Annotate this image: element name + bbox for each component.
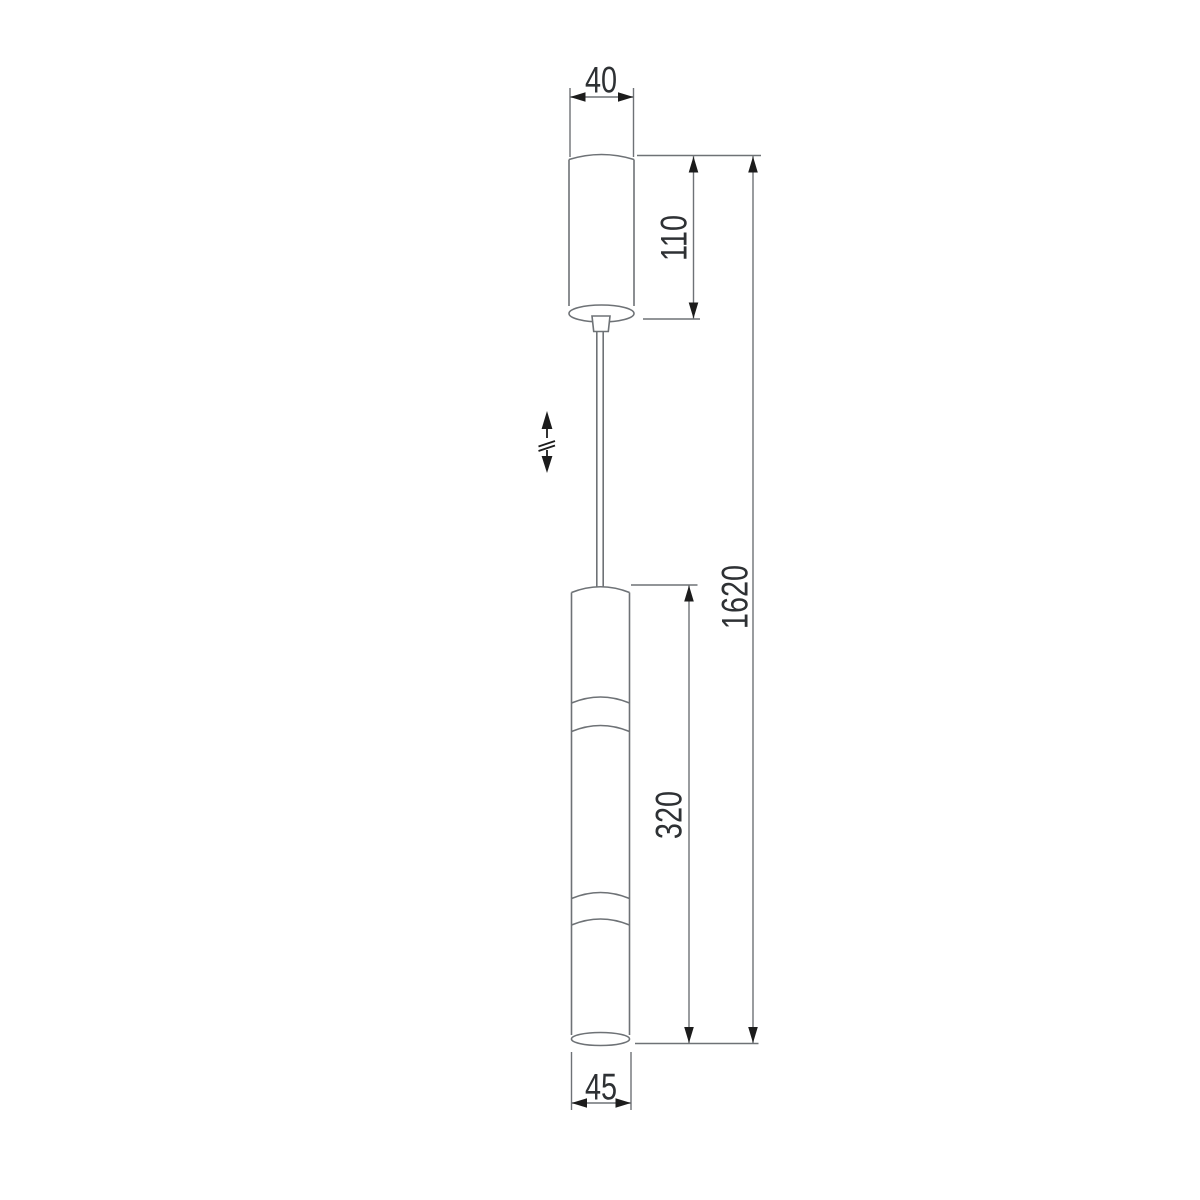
- upper-band-top-edge: [572, 697, 630, 703]
- height-adjust-icon: [539, 411, 556, 473]
- lamp-height-label: 320: [651, 791, 688, 839]
- overall-height-label: 1620: [717, 565, 754, 629]
- canopy-width-label: 40: [585, 62, 617, 99]
- arrow-up-icon: [684, 586, 694, 602]
- technical-drawing: [0, 0, 1200, 1200]
- lamp-width-label: 45: [585, 1069, 617, 1106]
- arrow-up-icon: [748, 157, 758, 173]
- arrow-down-icon: [689, 303, 699, 319]
- arrow-right-icon: [616, 1098, 632, 1107]
- lamp-body-outline: [572, 587, 630, 1046]
- drawing-canvas: 40 110 1620 320 45: [0, 0, 1200, 1200]
- arrow-down-icon: [684, 1027, 694, 1043]
- upper-band-bottom-edge: [572, 726, 630, 732]
- lamp-bottom-rim: [572, 1033, 630, 1046]
- arrow-up-icon: [689, 157, 699, 173]
- canopy-outline: [569, 155, 634, 323]
- arrow-right-icon: [618, 92, 634, 101]
- arrow-left-icon: [570, 92, 586, 101]
- lower-band-top-edge: [572, 893, 630, 899]
- suspension-cable: [597, 332, 603, 588]
- cable-connector: [592, 316, 610, 332]
- lower-band-bottom-edge: [572, 919, 630, 925]
- arrow-down-icon: [748, 1027, 758, 1043]
- canopy-height-label: 110: [656, 215, 693, 261]
